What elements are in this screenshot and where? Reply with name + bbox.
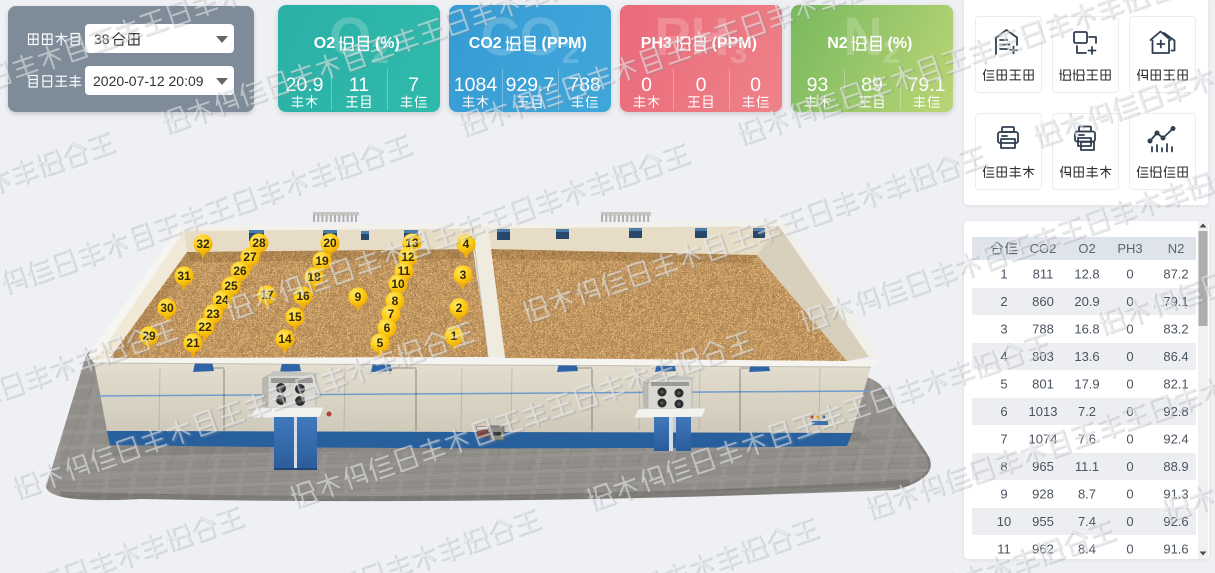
svg-text:CO2: CO2 (1030, 241, 1057, 256)
svg-text:0: 0 (1126, 487, 1133, 502)
svg-text:929.7: 929.7 (506, 74, 555, 96)
svg-text:0: 0 (1126, 542, 1133, 557)
svg-text:21: 21 (186, 336, 200, 350)
svg-text:20: 20 (323, 236, 337, 250)
svg-text:(PPM): (PPM) (712, 35, 757, 52)
svg-text:10: 10 (391, 277, 405, 291)
svg-text:88.9: 88.9 (1163, 459, 1188, 474)
svg-text:30: 30 (160, 301, 174, 315)
svg-text:N2: N2 (1168, 241, 1185, 256)
svg-text:27: 27 (243, 250, 257, 264)
svg-text:79.1: 79.1 (1163, 294, 1188, 309)
svg-text:(%): (%) (375, 35, 400, 52)
svg-text:17.9: 17.9 (1074, 377, 1099, 392)
svg-text:31: 31 (177, 269, 191, 283)
svg-text:1: 1 (451, 329, 458, 343)
svg-text:1013: 1013 (1029, 404, 1058, 419)
svg-text:6: 6 (384, 321, 391, 335)
svg-text:32: 32 (196, 237, 210, 251)
svg-text:82.1: 82.1 (1163, 377, 1188, 392)
svg-text:17: 17 (260, 288, 274, 302)
svg-text:92.4: 92.4 (1163, 432, 1188, 447)
svg-text:962: 962 (1032, 542, 1054, 557)
svg-text:79.1: 79.1 (908, 74, 946, 96)
svg-text:11.1: 11.1 (1075, 459, 1099, 474)
svg-text:87.2: 87.2 (1163, 267, 1188, 282)
svg-text:26: 26 (233, 264, 247, 278)
svg-text:20.9: 20.9 (286, 74, 324, 96)
svg-text:13.6: 13.6 (1074, 349, 1099, 364)
svg-text:4: 4 (463, 237, 470, 251)
svg-text:2020-07-12 20:09: 2020-07-12 20:09 (93, 73, 204, 89)
svg-text:7.2: 7.2 (1078, 404, 1096, 419)
svg-text:89: 89 (861, 74, 883, 96)
svg-text:86.4: 86.4 (1163, 349, 1188, 364)
svg-text:83.2: 83.2 (1163, 322, 1188, 337)
svg-text:0: 0 (1126, 377, 1133, 392)
svg-text:5: 5 (1000, 377, 1007, 392)
svg-text:O2: O2 (1078, 241, 1095, 256)
svg-text:9: 9 (1000, 487, 1007, 502)
svg-text:0: 0 (641, 74, 652, 96)
svg-text:14: 14 (278, 332, 292, 346)
svg-text:803: 803 (1032, 349, 1054, 364)
svg-text:788: 788 (568, 74, 601, 96)
svg-text:3: 3 (1000, 322, 1007, 337)
svg-text:PH3: PH3 (1117, 241, 1142, 256)
svg-text:0: 0 (1126, 459, 1133, 474)
svg-text:24: 24 (215, 293, 229, 307)
svg-text:92.6: 92.6 (1163, 514, 1188, 529)
svg-text:19: 19 (315, 254, 329, 268)
svg-text:7: 7 (408, 74, 419, 96)
svg-text:0: 0 (1126, 294, 1133, 309)
svg-text:8.7: 8.7 (1078, 487, 1096, 502)
svg-text:928: 928 (1032, 487, 1054, 502)
svg-text:O2: O2 (314, 35, 335, 52)
svg-text:0: 0 (1126, 404, 1133, 419)
svg-text:(%): (%) (888, 35, 913, 52)
svg-text:91.6: 91.6 (1163, 542, 1188, 557)
svg-text:0: 0 (750, 74, 761, 96)
svg-text:20.9: 20.9 (1074, 294, 1099, 309)
svg-text:28: 28 (252, 236, 266, 250)
svg-text:92.8: 92.8 (1163, 404, 1188, 419)
svg-text:965: 965 (1032, 459, 1054, 474)
svg-text:1084: 1084 (454, 74, 498, 96)
svg-text:9: 9 (355, 290, 362, 304)
svg-text:11: 11 (349, 74, 369, 96)
svg-text:16: 16 (296, 289, 310, 303)
svg-text:0: 0 (1126, 267, 1133, 282)
svg-text:91.3: 91.3 (1163, 487, 1188, 502)
svg-text:0: 0 (1126, 432, 1133, 447)
svg-text:93: 93 (807, 74, 829, 96)
svg-text:7: 7 (1000, 432, 1007, 447)
svg-text:11: 11 (997, 542, 1011, 557)
svg-text:29: 29 (142, 329, 156, 343)
svg-text:788: 788 (1032, 322, 1054, 337)
svg-text:3: 3 (460, 268, 467, 282)
svg-text:7.4: 7.4 (1078, 514, 1096, 529)
svg-text:0: 0 (1126, 322, 1133, 337)
svg-text:16.8: 16.8 (1074, 322, 1099, 337)
svg-text:811: 811 (1033, 267, 1054, 282)
svg-text:0: 0 (1126, 349, 1133, 364)
svg-text:N2: N2 (827, 35, 848, 52)
svg-text:8: 8 (1000, 459, 1007, 474)
svg-text:2: 2 (456, 301, 463, 315)
svg-text:7.6: 7.6 (1078, 432, 1096, 447)
svg-text:25: 25 (224, 279, 238, 293)
svg-text:38: 38 (94, 31, 110, 47)
svg-text:1074: 1074 (1029, 432, 1058, 447)
svg-text:4: 4 (1000, 349, 1007, 364)
svg-text:0: 0 (1126, 514, 1133, 529)
svg-text:22: 22 (198, 320, 212, 334)
svg-text:2: 2 (1000, 294, 1007, 309)
svg-text:PH3: PH3 (641, 35, 672, 52)
svg-text:860: 860 (1032, 294, 1054, 309)
svg-text:1: 1 (1000, 267, 1007, 282)
svg-text:6: 6 (1000, 404, 1007, 419)
svg-text:8.4: 8.4 (1078, 542, 1096, 557)
svg-text:5: 5 (377, 336, 384, 350)
svg-text:18: 18 (307, 270, 321, 284)
svg-text:0: 0 (696, 74, 707, 96)
svg-text:(PPM): (PPM) (542, 35, 587, 52)
svg-text:CO2: CO2 (469, 35, 502, 52)
svg-text:801: 801 (1032, 377, 1054, 392)
svg-text:955: 955 (1032, 514, 1054, 529)
svg-text:12.8: 12.8 (1074, 267, 1099, 282)
svg-text:10: 10 (997, 514, 1011, 529)
svg-text:15: 15 (288, 310, 302, 324)
